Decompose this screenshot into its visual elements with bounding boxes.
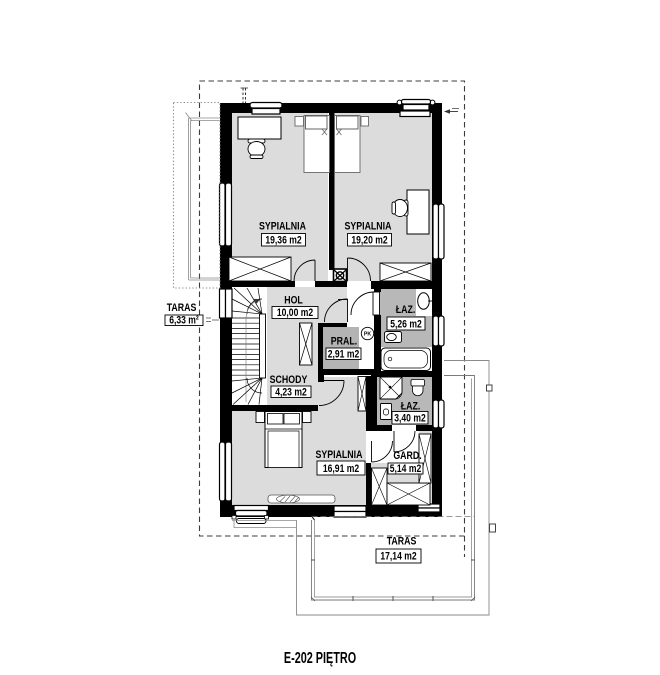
svg-text:6,33 m²: 6,33 m² (169, 315, 199, 327)
svg-text:4,23 m2: 4,23 m2 (275, 387, 307, 399)
svg-text:19,36 m2: 19,36 m2 (265, 235, 302, 247)
svg-text:SYPIALNIA: SYPIALNIA (316, 449, 363, 461)
svg-text:GARD.: GARD. (393, 450, 422, 462)
svg-text:19,20 m2: 19,20 m2 (351, 235, 388, 247)
svg-text:17,14 m2: 17,14 m2 (380, 551, 417, 563)
svg-text:TARAS: TARAS (387, 536, 417, 548)
svg-text:16,91 m2: 16,91 m2 (323, 463, 360, 475)
svg-text:ŁAZ.: ŁAZ. (401, 401, 421, 413)
svg-text:ŁAZ.: ŁAZ. (396, 304, 416, 316)
svg-text:HOL: HOL (284, 295, 303, 307)
svg-text:E-202 PIĘTRO: E-202 PIĘTRO (284, 649, 356, 666)
svg-text:2,91 m2: 2,91 m2 (328, 349, 360, 361)
svg-text:SCHODY: SCHODY (270, 374, 308, 386)
svg-text:PK: PK (364, 332, 371, 338)
svg-text:10,00 m2: 10,00 m2 (277, 307, 314, 319)
svg-text:5,26 m2: 5,26 m2 (390, 319, 422, 331)
svg-text:PRAL.: PRAL. (331, 336, 358, 348)
svg-text:SYPIALNIA: SYPIALNIA (259, 221, 306, 233)
svg-text:5,14 m2: 5,14 m2 (390, 463, 422, 475)
svg-text:SYPIALNIA: SYPIALNIA (345, 221, 392, 233)
svg-text:TARAS: TARAS (167, 302, 197, 314)
svg-text:3,40 m2: 3,40 m2 (394, 413, 426, 425)
